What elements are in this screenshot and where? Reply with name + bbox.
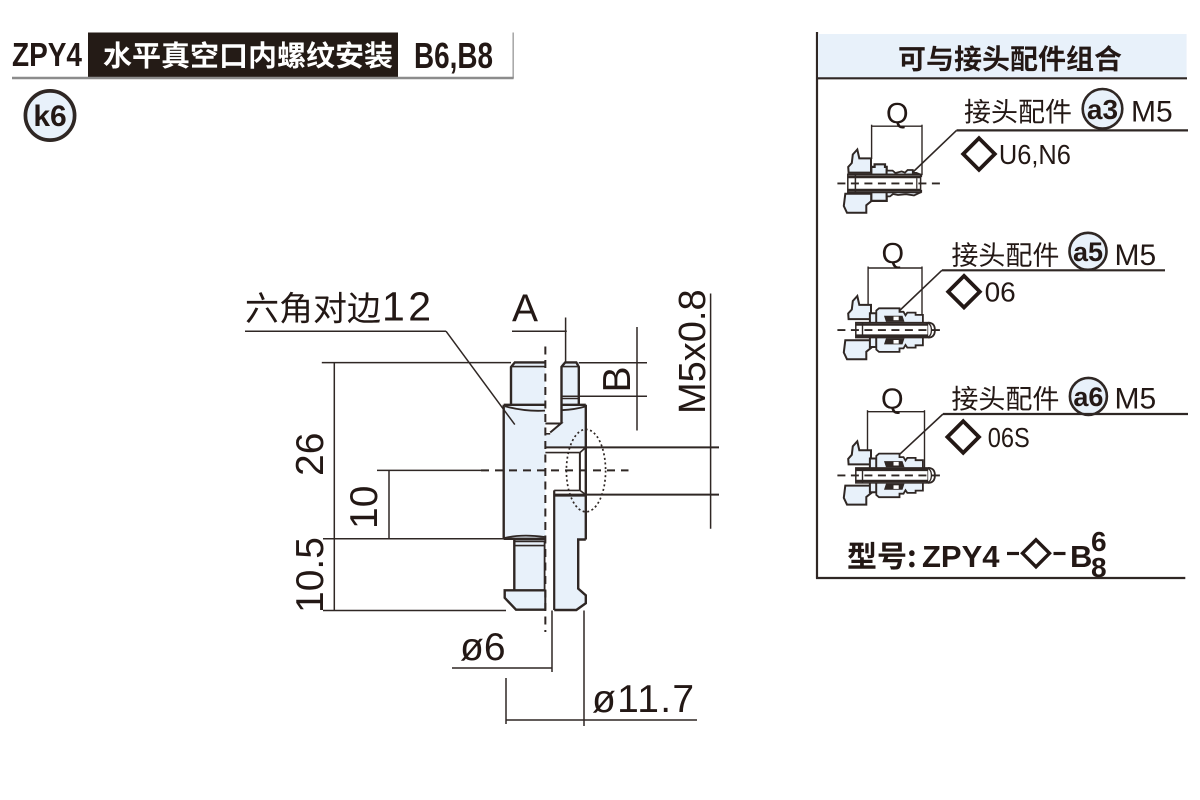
svg-text:M5: M5 bbox=[1115, 383, 1157, 416]
svg-text:M5: M5 bbox=[1131, 95, 1173, 128]
svg-text:ø6: ø6 bbox=[460, 626, 506, 669]
svg-text:Q: Q bbox=[882, 238, 905, 270]
svg-text:12: 12 bbox=[382, 284, 435, 330]
svg-text:B: B bbox=[596, 366, 639, 392]
svg-text:a5: a5 bbox=[1073, 237, 1103, 267]
svg-text:06S: 06S bbox=[988, 422, 1030, 453]
svg-text:26: 26 bbox=[289, 433, 332, 476]
svg-text:Q: Q bbox=[886, 98, 909, 130]
svg-text:06: 06 bbox=[985, 277, 1016, 308]
svg-text:a6: a6 bbox=[1073, 382, 1103, 412]
svg-text:ø11.7: ø11.7 bbox=[592, 678, 695, 721]
svg-text:B: B bbox=[1070, 539, 1092, 574]
svg-text:k6: k6 bbox=[33, 100, 66, 133]
svg-text:ZPY4: ZPY4 bbox=[12, 36, 83, 73]
svg-text:ZPY4: ZPY4 bbox=[922, 539, 1000, 574]
svg-text:M5x0.8: M5x0.8 bbox=[672, 289, 714, 414]
svg-text:10.5: 10.5 bbox=[289, 537, 332, 613]
svg-text:Q: Q bbox=[881, 384, 904, 416]
svg-text:8: 8 bbox=[1091, 552, 1107, 583]
svg-text:B6,B8: B6,B8 bbox=[414, 35, 493, 76]
svg-text:a3: a3 bbox=[1087, 94, 1118, 125]
svg-text:M5: M5 bbox=[1115, 239, 1157, 272]
svg-text:10: 10 bbox=[343, 486, 386, 529]
svg-text:A: A bbox=[512, 287, 538, 330]
svg-text:U6,N6: U6,N6 bbox=[999, 139, 1071, 170]
